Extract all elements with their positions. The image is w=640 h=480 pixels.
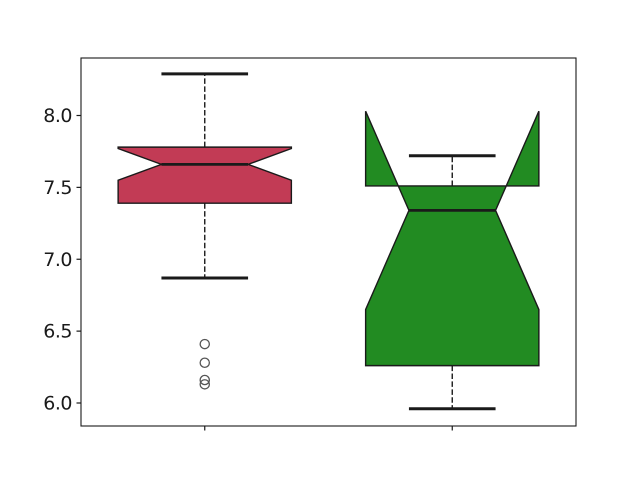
- y-tick-label: 7.5: [43, 177, 72, 199]
- y-tick-label: 7.0: [43, 249, 72, 271]
- y-tick-label: 6.5: [43, 321, 72, 343]
- y-tick-label: 6.0: [43, 393, 72, 415]
- box-1-box: [118, 147, 291, 203]
- boxplot-figure: 6.06.57.07.58.0: [0, 0, 640, 480]
- y-tick-label: 8.0: [43, 105, 72, 127]
- boxplot-canvas: 6.06.57.07.58.0: [0, 0, 640, 480]
